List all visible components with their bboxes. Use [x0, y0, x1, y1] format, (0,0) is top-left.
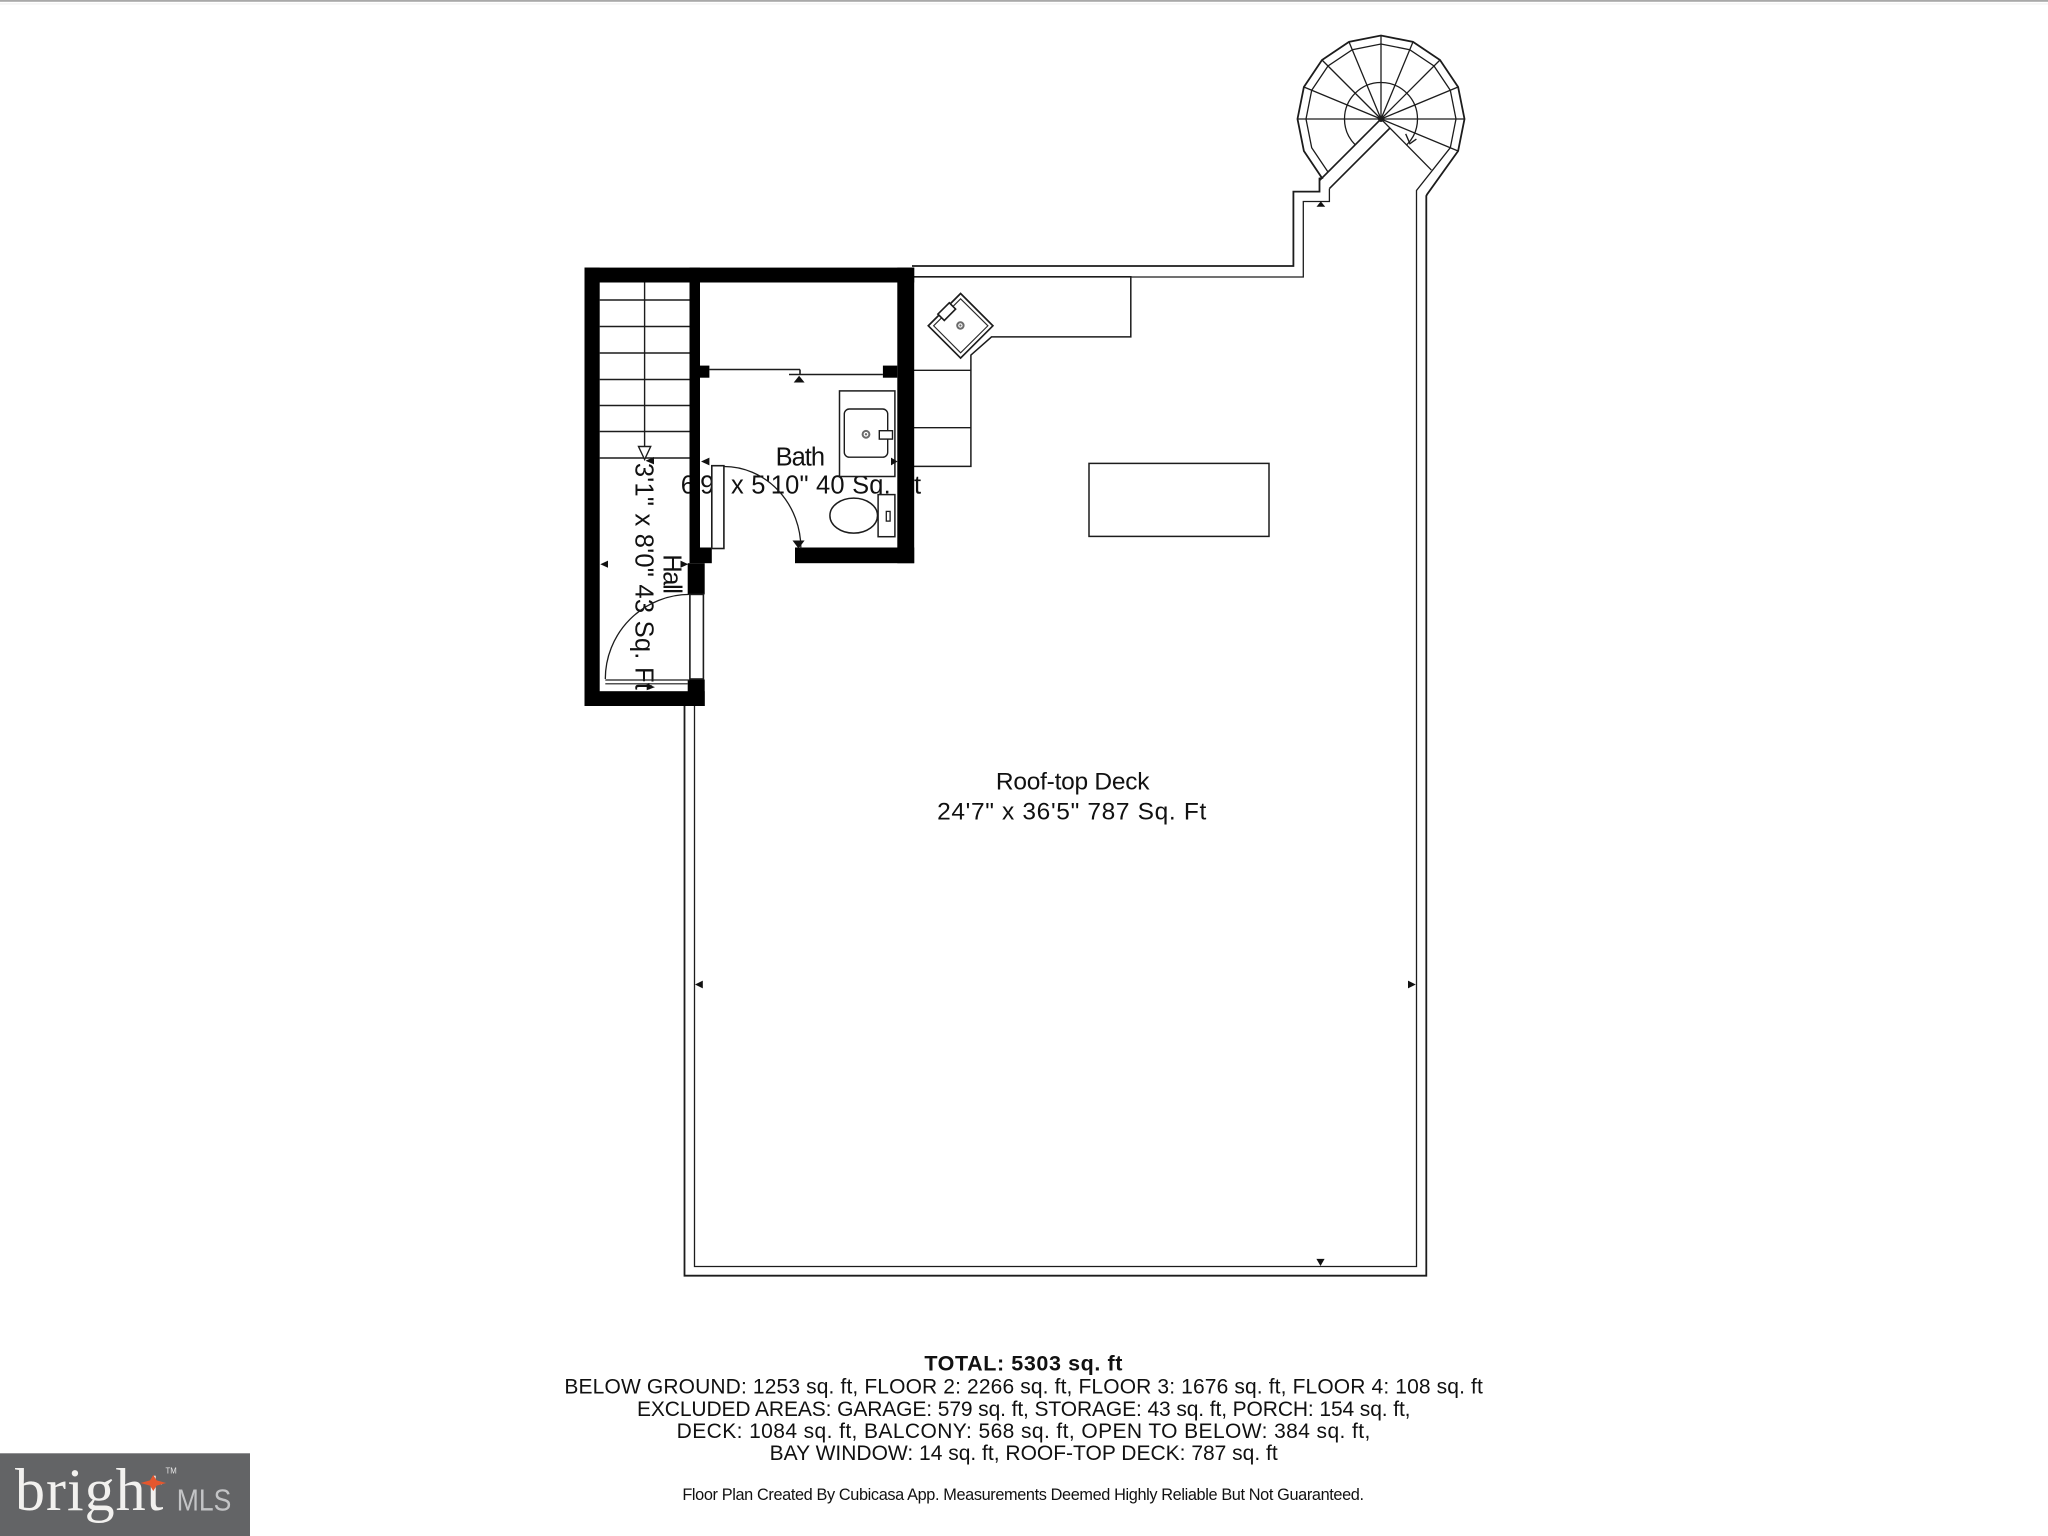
svg-text:BAY WINDOW: 14 sq. ft, ROOF-TO: BAY WINDOW: 14 sq. ft, ROOF-TOP DECK: 78…: [770, 1442, 1278, 1465]
svg-text:BELOW GROUND: 1253 sq. ft, FLO: BELOW GROUND: 1253 sq. ft, FLOOR 2: 2266…: [564, 1376, 1483, 1399]
svg-text:Hall: Hall: [658, 554, 686, 592]
svg-text:DECK: 1084 sq. ft, BALCONY: 56: DECK: 1084 sq. ft, BALCONY: 568 sq. ft, …: [677, 1420, 1371, 1443]
svg-text:Bath: Bath: [776, 444, 824, 472]
svg-text:Floor Plan Created By Cubicasa: Floor Plan Created By Cubicasa App. Meas…: [682, 1486, 1363, 1504]
svg-text:24'7" x 36'5" 787 Sq. Ft: 24'7" x 36'5" 787 Sq. Ft: [937, 799, 1207, 826]
svg-text:TM: TM: [166, 1467, 177, 1476]
svg-text:EXCLUDED AREAS: GARAGE: 579 sq: EXCLUDED AREAS: GARAGE: 579 sq. ft, STOR…: [637, 1398, 1410, 1421]
svg-text:TOTAL: 5303 sq. ft: TOTAL: 5303 sq. ft: [924, 1352, 1123, 1376]
svg-text:bright: bright: [15, 1457, 164, 1523]
svg-text:MLS: MLS: [177, 1484, 231, 1518]
svg-text:3'1" x 8'0" 43 Sq. Ft: 3'1" x 8'0" 43 Sq. Ft: [630, 463, 658, 690]
svg-text:Roof-top Deck: Roof-top Deck: [996, 769, 1150, 796]
